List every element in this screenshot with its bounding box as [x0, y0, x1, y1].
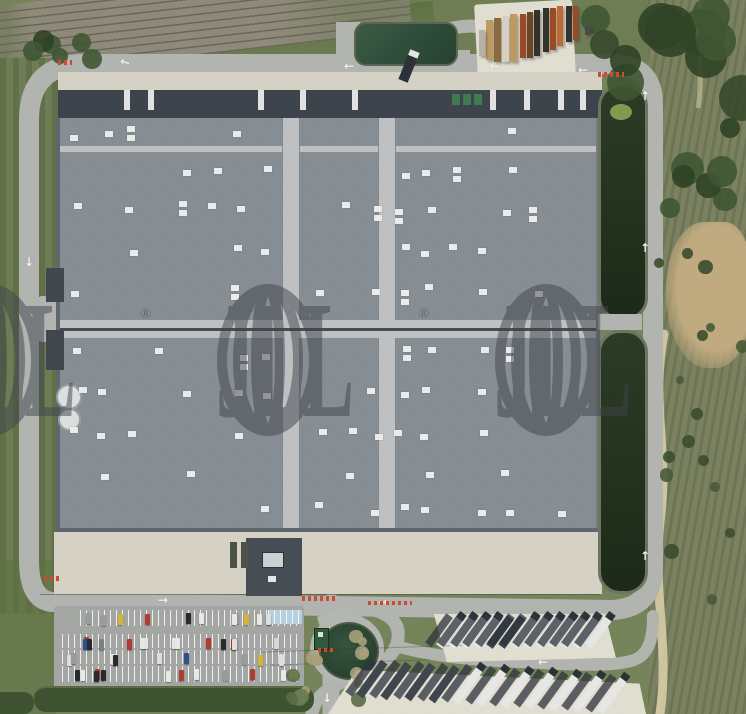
dockContainers: [463, 94, 471, 105]
skylight: [235, 433, 243, 439]
canopyTR-blob: [692, 0, 729, 34]
skylight: [481, 347, 489, 353]
roof-ridge-line: [58, 328, 602, 331]
skylight: [478, 389, 486, 395]
car: [194, 669, 199, 680]
fieldTrees-blob: [663, 451, 675, 463]
skylight: [422, 170, 430, 176]
material-stack: [543, 8, 549, 52]
car: [175, 638, 180, 649]
shrubsB-blob: [349, 630, 362, 643]
car: [101, 615, 106, 626]
skylight: [478, 248, 486, 254]
car: [113, 655, 118, 666]
roof-edge-left: [56, 118, 60, 532]
skylight: [98, 389, 106, 395]
skylight: [264, 166, 272, 172]
skylight: [403, 355, 411, 361]
red-fence-marking: [318, 648, 334, 652]
south-trailer-1: [230, 542, 237, 568]
car: [75, 670, 80, 681]
skylight: [342, 202, 350, 208]
skylight: [315, 502, 323, 508]
skylight: [367, 388, 375, 394]
car: [244, 614, 249, 625]
car: [179, 670, 184, 681]
dockTrailers: [524, 90, 530, 110]
skylight: [529, 216, 537, 222]
car: [118, 614, 123, 625]
road-arrow-marking: ←: [344, 60, 354, 72]
road-arrow-marking: ↓: [322, 692, 332, 704]
material-stack: [479, 30, 485, 56]
car: [186, 613, 191, 624]
car: [101, 670, 106, 681]
skylight: [506, 356, 514, 362]
fieldTrees-blob: [706, 323, 715, 332]
material-stack: [494, 18, 501, 62]
aerial-photo: ←←←←↓↑↑↑→→↓← JLL ® JLL ® JLL ®: [0, 0, 746, 714]
skylight: [214, 168, 222, 174]
skylight: [240, 355, 248, 361]
car: [232, 614, 237, 625]
hedge-left: [0, 692, 34, 714]
skylight: [506, 510, 514, 516]
skylight: [71, 291, 79, 297]
skylight: [208, 203, 216, 209]
skylight: [529, 207, 537, 213]
car: [80, 670, 85, 681]
skylight: [261, 249, 269, 255]
skylight: [231, 285, 239, 291]
material-stack: [550, 8, 556, 50]
fieldTrees-blob: [682, 248, 693, 259]
skylight: [261, 506, 269, 512]
skylight: [501, 470, 509, 476]
skylight: [231, 294, 239, 300]
skylight: [401, 392, 409, 398]
north-dock-band: [58, 90, 602, 120]
car: [232, 639, 237, 650]
canopyR-blob: [720, 118, 740, 138]
skylight: [234, 245, 242, 251]
fieldTrees-blob: [736, 340, 746, 353]
skylight: [480, 430, 488, 436]
roof-seam-top: [58, 146, 602, 152]
dockTrailers: [124, 90, 130, 110]
skylight: [263, 393, 271, 399]
annex-west-1: [46, 268, 64, 302]
red-fence-marking: [302, 596, 338, 601]
skylight: [105, 131, 113, 137]
car: [279, 655, 284, 666]
dockContainers: [452, 94, 460, 105]
car: [86, 613, 91, 624]
basin-gap: [598, 314, 642, 330]
skylight: [421, 251, 429, 257]
skylight: [346, 473, 354, 479]
fieldTrees-blob: [698, 455, 709, 466]
skylight: [237, 206, 245, 212]
skylight: [187, 471, 195, 477]
car: [242, 654, 247, 665]
bushTL-blob: [82, 49, 102, 69]
bushTL-blob: [23, 41, 43, 61]
skylight: [240, 364, 248, 370]
skylight: [401, 290, 409, 296]
skylight: [503, 210, 511, 216]
car: [221, 639, 226, 650]
skylight: [428, 207, 436, 213]
car: [127, 639, 132, 650]
road-arrow-marking: ←: [578, 64, 588, 76]
dockTrailers: [490, 90, 496, 110]
dockContainers: [474, 94, 482, 105]
road-arrow-marking: ↓: [24, 256, 34, 268]
parking-blue-bays: [268, 610, 302, 624]
red-fence-marking: [598, 72, 624, 77]
material-stack: [520, 14, 526, 58]
skylight: [558, 511, 566, 517]
skylight: [127, 126, 135, 132]
skylight: [428, 347, 436, 353]
material-stack: [527, 12, 533, 58]
south-truck-court: [54, 532, 602, 594]
skylight: [449, 244, 457, 250]
dockTrailers: [580, 90, 586, 110]
skylight: [374, 206, 382, 212]
skylight: [155, 348, 163, 354]
car: [94, 671, 99, 682]
skylight: [453, 167, 461, 173]
skylight: [127, 135, 135, 141]
car: [257, 614, 262, 625]
basin-algae: [610, 104, 632, 120]
south-trailer-2: [241, 542, 248, 568]
material-stack: [486, 20, 493, 60]
fieldTrees-blob: [725, 528, 735, 538]
skylight: [375, 434, 383, 440]
material-stack: [502, 16, 509, 62]
road-arrow-marking: ↑: [640, 90, 650, 102]
car: [166, 671, 171, 682]
skylight: [402, 173, 410, 179]
skylight: [425, 284, 433, 290]
red-fence-marking: [58, 60, 72, 65]
road-arrow-marking: ↑: [640, 242, 650, 254]
skylight: [395, 218, 403, 224]
skylight: [403, 346, 411, 352]
hedge-main: [34, 686, 314, 712]
road-arrow-marking: ←: [490, 60, 500, 72]
car: [87, 639, 92, 650]
skylight: [79, 387, 87, 393]
skylight: [395, 209, 403, 215]
road-arrow-marking: ←: [538, 656, 548, 668]
skylight: [70, 427, 78, 433]
skylight: [179, 210, 187, 216]
skylight: [394, 430, 402, 436]
skylight: [316, 290, 324, 296]
car: [266, 614, 271, 625]
south-annex-dot: [268, 576, 276, 582]
fieldTrees-blob: [664, 544, 678, 558]
car: [206, 638, 211, 649]
skylight: [101, 474, 109, 480]
dockTrailers: [258, 90, 264, 110]
car: [223, 670, 228, 681]
road-arrow-marking: →: [158, 594, 168, 606]
car: [157, 653, 162, 664]
skylight: [372, 289, 380, 295]
red-fence-marking: [44, 576, 62, 581]
car: [199, 613, 204, 624]
skylight: [233, 131, 241, 137]
skylight: [374, 215, 382, 221]
skylight: [535, 291, 543, 297]
skylight: [73, 348, 81, 354]
fence-south: [40, 594, 600, 595]
car: [145, 614, 150, 625]
skylight: [371, 510, 379, 516]
skylight: [420, 434, 428, 440]
dockTrailers: [558, 90, 564, 110]
material-stack: [566, 6, 572, 42]
car: [274, 638, 279, 649]
skylight: [401, 504, 409, 510]
south-annex-roof-unit: [262, 552, 284, 568]
car: [99, 639, 104, 650]
skylight: [453, 176, 461, 182]
skylight: [74, 203, 82, 209]
skylight: [262, 354, 270, 360]
gatehouse-roof-dot: [318, 632, 323, 637]
skylight: [349, 428, 357, 434]
skylight: [506, 347, 514, 353]
car: [281, 670, 286, 681]
car: [140, 638, 145, 649]
skylight: [478, 510, 486, 516]
car: [258, 655, 263, 666]
skylight: [426, 472, 434, 478]
material-stack: [573, 6, 578, 40]
material-stack: [585, 26, 591, 35]
skylight: [508, 128, 516, 134]
skylight: [97, 433, 105, 439]
skylight: [479, 289, 487, 295]
annex-west-2: [46, 330, 64, 370]
skylight: [401, 299, 409, 305]
dockTrailers: [300, 90, 306, 110]
canopyR-blob: [660, 198, 679, 217]
skylight: [70, 135, 78, 141]
parking-row-2: [62, 634, 302, 648]
skylight: [509, 167, 517, 173]
fieldTrees-blob: [676, 376, 684, 384]
fieldTrees-blob: [660, 468, 673, 481]
skylight: [422, 387, 430, 393]
material-stack: [557, 6, 563, 46]
skylight: [319, 429, 327, 435]
car: [71, 653, 76, 664]
skylight: [183, 391, 191, 397]
car: [250, 669, 255, 680]
skylight: [421, 507, 429, 513]
dockTrailers: [352, 90, 358, 110]
road-arrow-marking: ↑: [640, 550, 650, 562]
material-stack: [510, 14, 517, 62]
fieldTrees-blob: [707, 594, 717, 604]
car: [184, 653, 189, 664]
skylight: [128, 431, 136, 437]
canopyR-blob: [707, 156, 737, 186]
fieldTrees-blob: [698, 260, 713, 275]
skylight: [402, 244, 410, 250]
skylight: [179, 201, 187, 207]
skylight: [130, 250, 138, 256]
shrubsB-blob: [350, 667, 363, 680]
canopyTR-blob: [645, 5, 697, 57]
bushTL-blob: [72, 33, 91, 52]
north-dock-apron: [58, 72, 602, 92]
material-stack: [534, 10, 540, 56]
dockTrailers: [148, 90, 154, 110]
skylight: [125, 207, 133, 213]
red-fence-marking: [368, 601, 412, 605]
skylight: [235, 390, 243, 396]
skylight: [183, 170, 191, 176]
fieldTrees-blob: [691, 408, 703, 420]
